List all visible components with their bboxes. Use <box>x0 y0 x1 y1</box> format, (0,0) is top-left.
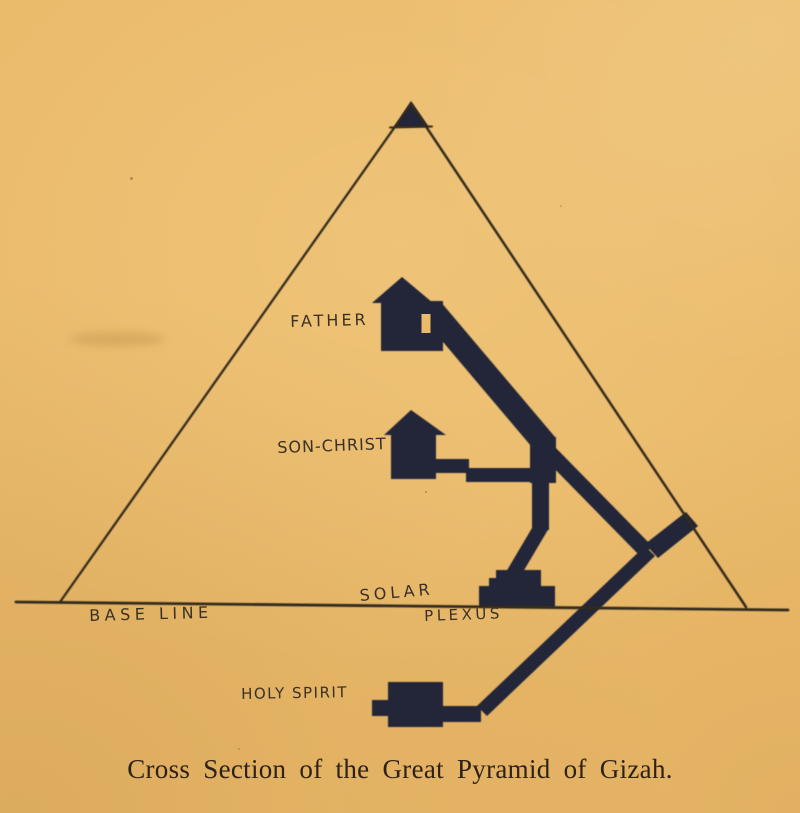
label-holy-spirit: HOLY SPIRIT <box>241 685 348 702</box>
figure-caption: Cross Section of the Great Pyramid of Gi… <box>0 754 800 785</box>
solar-plexus-mound-top <box>496 570 541 587</box>
well-shaft-bend <box>506 528 549 572</box>
label-son-christ: SON-CHRIST <box>277 436 387 456</box>
pyramid-left-side-line <box>60 104 411 602</box>
holy-spirit-left-stub <box>372 700 390 716</box>
father-chamber-notch <box>422 314 431 333</box>
label-father: FATHER <box>290 312 369 330</box>
well-shaft-vertical <box>532 470 549 530</box>
holy-spirit-right-bar <box>427 706 481 722</box>
scanned-book-page: FATHER SON-CHRIST SOLAR PLEXUS BASE LINE… <box>0 0 800 813</box>
capstone-underline <box>390 127 432 128</box>
label-base-line: BASE LINE <box>89 605 213 624</box>
entrance-passage-shape <box>645 512 698 558</box>
son-christ-passage-inner <box>436 459 469 473</box>
label-plexus: PLEXUS <box>424 606 503 624</box>
grand-gallery-shape <box>427 301 555 459</box>
ascending-passage-shape <box>541 443 652 558</box>
pyramid-cross-section-diagram <box>0 0 800 813</box>
